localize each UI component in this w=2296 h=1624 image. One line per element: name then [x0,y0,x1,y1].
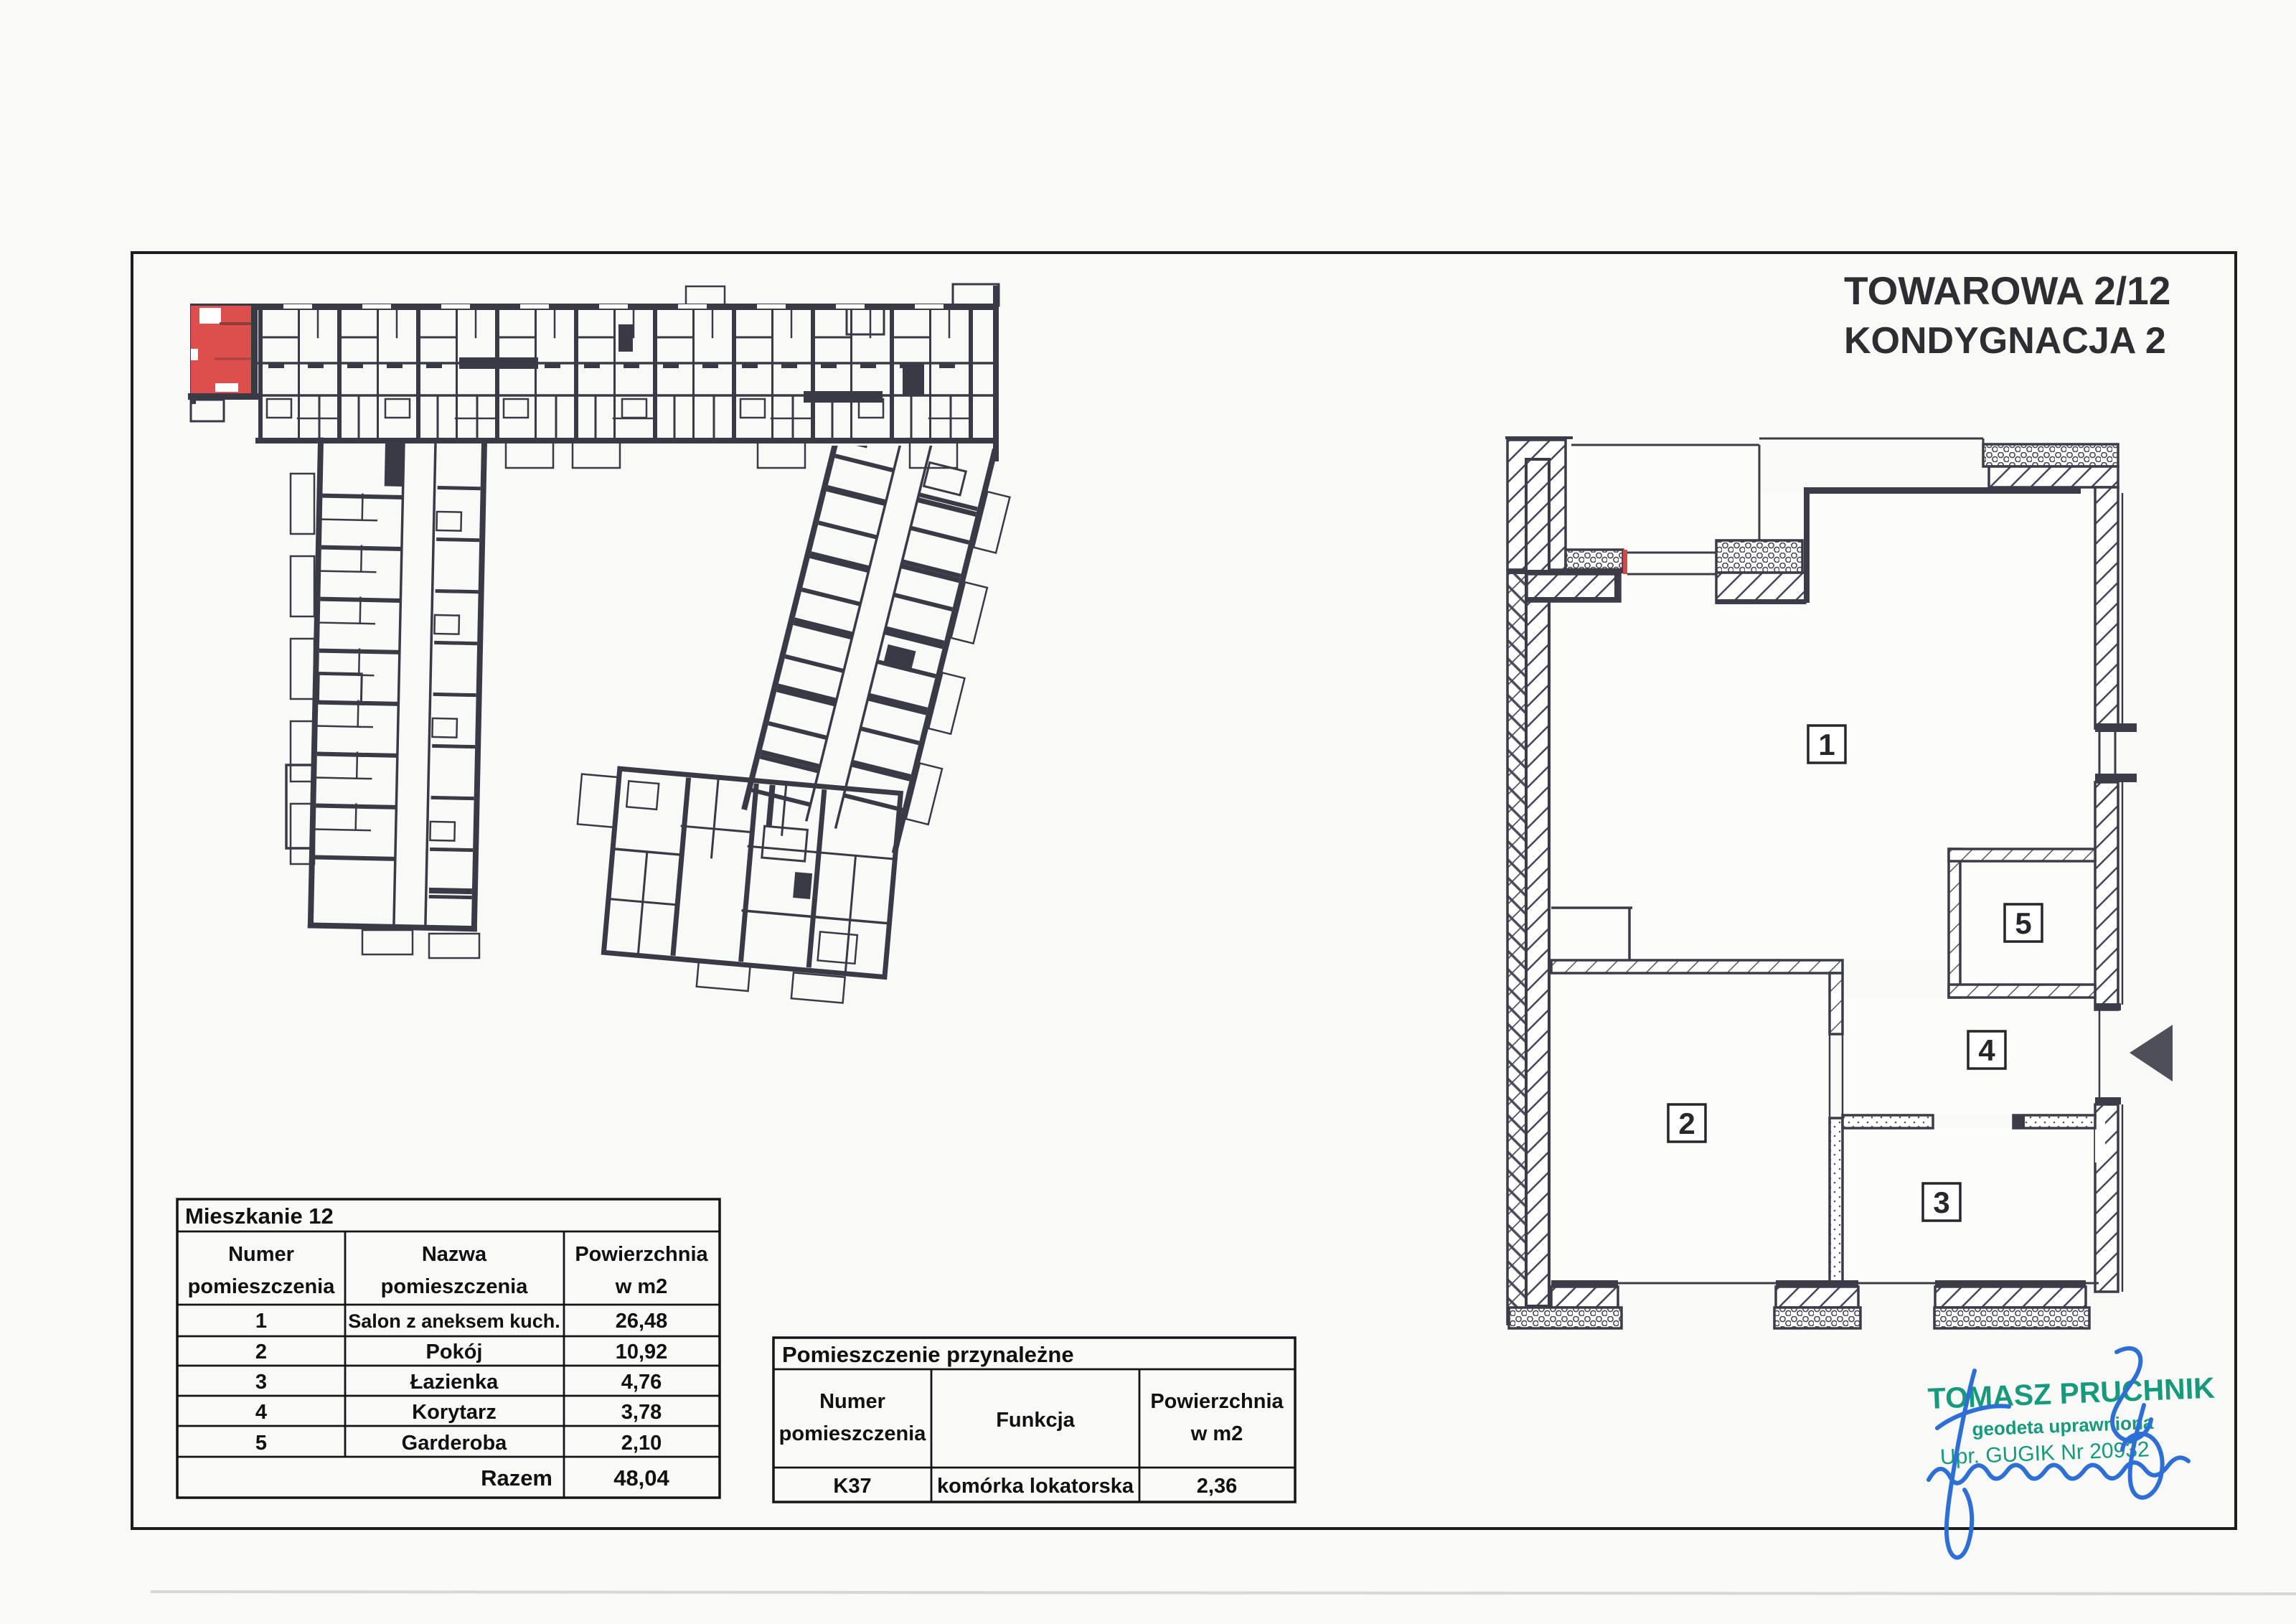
svg-text:1: 1 [255,1310,267,1333]
svg-text:10,92: 10,92 [616,1341,668,1363]
svg-text:Funkcja: Funkcja [996,1409,1075,1432]
svg-text:5: 5 [2015,906,2031,940]
svg-text:Mieszkanie 12: Mieszkanie 12 [185,1203,334,1229]
svg-text:pomieszczenia: pomieszczenia [779,1422,927,1445]
svg-text:48,04: 48,04 [613,1465,669,1491]
svg-text:4: 4 [255,1401,267,1424]
svg-text:Pomieszczenie przynależne: Pomieszczenie przynależne [782,1342,1074,1367]
svg-text:Pokój: Pokój [426,1341,483,1363]
svg-text:Powierzchnia: Powierzchnia [1150,1390,1284,1413]
svg-text:Razem: Razem [481,1465,552,1491]
svg-text:2,36: 2,36 [1197,1475,1237,1498]
svg-text:2: 2 [1678,1107,1695,1140]
svg-text:K37: K37 [833,1475,871,1498]
svg-text:26,48: 26,48 [616,1310,668,1333]
svg-text:2,10: 2,10 [621,1432,662,1455]
svg-text:TOWAROWA 2/12: TOWAROWA 2/12 [1844,268,2170,313]
svg-text:2: 2 [255,1341,267,1363]
svg-text:pomieszczenia: pomieszczenia [188,1275,336,1298]
svg-text:3: 3 [1933,1186,1949,1219]
svg-text:1: 1 [1818,728,1835,761]
svg-text:4: 4 [1978,1033,1995,1067]
svg-text:3,78: 3,78 [621,1401,662,1424]
svg-text:pomieszczenia: pomieszczenia [381,1275,529,1298]
svg-text:Korytarz: Korytarz [412,1401,497,1424]
svg-text:komórka lokatorska: komórka lokatorska [937,1475,1134,1498]
svg-text:3: 3 [255,1371,267,1394]
svg-text:Garderoba: Garderoba [402,1432,508,1455]
svg-text:Numer: Numer [228,1243,294,1266]
svg-text:w m2: w m2 [615,1275,668,1298]
svg-text:4,76: 4,76 [621,1371,662,1394]
svg-text:Nazwa: Nazwa [422,1243,487,1266]
svg-text:5: 5 [255,1432,267,1455]
svg-text:Łazienka: Łazienka [410,1371,499,1394]
svg-text:Numer: Numer [819,1390,885,1413]
svg-text:Salon z aneksem kuch.: Salon z aneksem kuch. [348,1310,560,1332]
svg-text:Powierzchnia: Powierzchnia [575,1243,708,1266]
svg-text:w m2: w m2 [1190,1422,1243,1445]
svg-text:KONDYGNACJA 2: KONDYGNACJA 2 [1844,320,2166,362]
